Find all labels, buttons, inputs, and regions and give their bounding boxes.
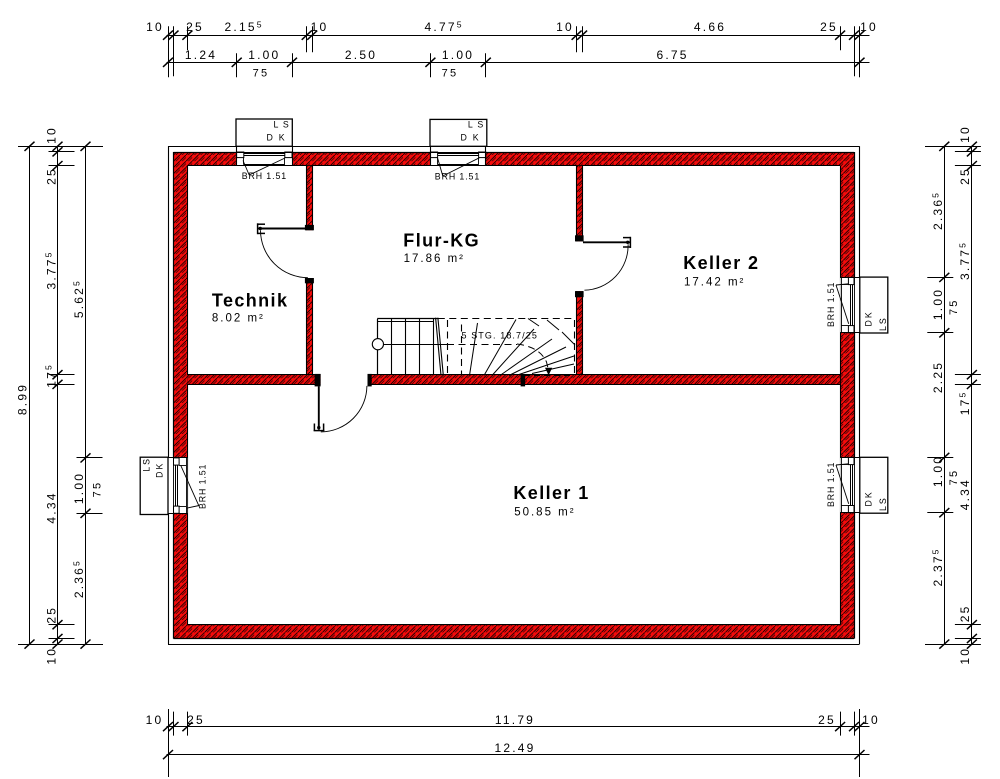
svg-text:2.155: 2.155 (225, 20, 262, 35)
svg-text:DK: DK (266, 133, 290, 143)
svg-text:Keller 2: Keller 2 (683, 253, 759, 273)
svg-text:3.775: 3.775 (44, 252, 59, 289)
svg-text:LS: LS (468, 119, 488, 129)
svg-text:2.50: 2.50 (345, 48, 377, 62)
svg-text:Flur-KG: Flur-KG (403, 231, 480, 251)
svg-text:DK: DK (460, 133, 484, 143)
svg-text:25: 25 (44, 606, 58, 624)
svg-text:1.00: 1.00 (931, 455, 945, 487)
svg-text:25: 25 (187, 713, 205, 727)
svg-text:BRH 1.51: BRH 1.51 (435, 172, 480, 182)
svg-text:4.34: 4.34 (958, 478, 972, 510)
svg-text:5.625: 5.625 (71, 281, 86, 318)
svg-text:2.365: 2.365 (71, 561, 86, 598)
svg-text:12.49: 12.49 (494, 741, 535, 755)
svg-text:Technik: Technik (212, 291, 288, 311)
svg-text:2.25: 2.25 (931, 361, 945, 393)
svg-text:17.42 m²: 17.42 m² (684, 276, 745, 288)
svg-text:LS: LS (878, 496, 888, 511)
svg-text:11.79: 11.79 (495, 713, 535, 727)
svg-text:LS: LS (274, 119, 294, 129)
svg-text:75: 75 (92, 481, 104, 498)
svg-text:10: 10 (146, 713, 164, 727)
svg-text:1.00: 1.00 (442, 48, 474, 62)
svg-text:75: 75 (948, 298, 960, 315)
svg-text:8.99: 8.99 (15, 383, 29, 415)
svg-text:LS: LS (878, 316, 888, 331)
svg-text:3.775: 3.775 (958, 243, 973, 280)
svg-text:75: 75 (442, 68, 459, 80)
svg-text:1.00: 1.00 (248, 48, 280, 62)
svg-text:25: 25 (958, 167, 972, 185)
svg-text:10: 10 (958, 647, 972, 665)
svg-text:25: 25 (820, 20, 838, 34)
svg-text:25: 25 (186, 20, 204, 34)
svg-text:10: 10 (958, 125, 972, 143)
svg-text:10: 10 (556, 20, 574, 34)
svg-text:75: 75 (253, 68, 270, 80)
svg-text:5 STG. 18.7/25: 5 STG. 18.7/25 (462, 331, 538, 341)
svg-text:6.75: 6.75 (657, 48, 689, 62)
svg-text:10: 10 (311, 20, 329, 34)
svg-text:1.00: 1.00 (931, 288, 945, 320)
svg-text:DK: DK (155, 462, 165, 478)
svg-text:BRH 1.51: BRH 1.51 (198, 464, 208, 509)
svg-text:DK: DK (863, 490, 873, 506)
svg-text:8.02 m²: 8.02 m² (212, 313, 265, 325)
svg-text:BRH 1.51: BRH 1.51 (826, 282, 836, 327)
svg-text:2.365: 2.365 (930, 193, 945, 230)
svg-text:1.00: 1.00 (72, 472, 86, 504)
svg-text:4.66: 4.66 (694, 20, 726, 34)
svg-text:25: 25 (44, 167, 58, 185)
svg-text:25: 25 (958, 605, 972, 623)
svg-text:10: 10 (44, 126, 58, 144)
svg-text:17.86 m²: 17.86 m² (404, 253, 465, 265)
svg-text:25: 25 (818, 713, 836, 727)
svg-text:BRH 1.51: BRH 1.51 (826, 462, 836, 507)
svg-text:50.85 m²: 50.85 m² (514, 506, 575, 518)
svg-text:4.34: 4.34 (44, 491, 58, 523)
svg-text:10: 10 (146, 20, 164, 34)
svg-text:Keller 1: Keller 1 (513, 483, 589, 503)
svg-text:10: 10 (860, 20, 878, 34)
svg-text:BRH 1.51: BRH 1.51 (242, 171, 287, 181)
svg-text:DK: DK (863, 310, 873, 326)
svg-text:2.375: 2.375 (930, 549, 945, 586)
svg-text:1.24: 1.24 (185, 48, 217, 62)
svg-text:4.775: 4.775 (425, 20, 462, 35)
svg-text:10: 10 (862, 713, 880, 727)
svg-text:LS: LS (142, 457, 152, 472)
svg-text:10: 10 (44, 647, 58, 665)
